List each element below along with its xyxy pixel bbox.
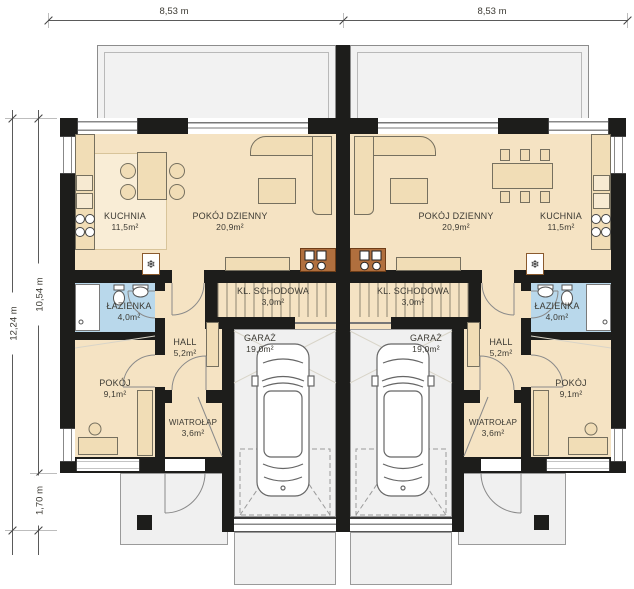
sideboard bbox=[225, 257, 290, 271]
label-garaz: GARAŻ 19,0m² bbox=[396, 333, 456, 354]
dim-height-porch: 1,70 m bbox=[35, 476, 46, 526]
label-lazienka: ŁAZIENKA 4,0m² bbox=[528, 301, 586, 322]
coffee-table bbox=[258, 178, 296, 204]
dining-chair bbox=[500, 149, 510, 161]
desk bbox=[78, 437, 118, 455]
driveway bbox=[234, 532, 336, 585]
dim-height-inner: 10,54 m bbox=[35, 264, 46, 326]
room-garaz-floor bbox=[234, 329, 336, 517]
window-side-pokoj bbox=[60, 428, 75, 462]
stair-railing bbox=[350, 322, 391, 324]
sofa-arm bbox=[312, 136, 332, 215]
porch-column bbox=[137, 515, 152, 530]
terrace bbox=[97, 45, 336, 119]
wall-bath-bottom bbox=[521, 332, 626, 340]
window-top-kitchen bbox=[548, 118, 609, 134]
kitchen-appliance bbox=[76, 175, 93, 191]
door-opening-hall bbox=[482, 270, 514, 283]
wall-bath-bottom bbox=[60, 332, 165, 340]
kitchen-counter bbox=[75, 134, 95, 250]
entry-door-opening bbox=[481, 459, 521, 471]
window-top-kitchen bbox=[77, 118, 138, 134]
window-side-kitchen bbox=[611, 136, 626, 174]
entry-porch bbox=[120, 473, 228, 545]
terrace-sliding-door bbox=[188, 118, 308, 134]
terrace-outline bbox=[104, 52, 329, 118]
dim-width-left: 8,53 m bbox=[130, 6, 218, 17]
shower bbox=[586, 284, 611, 331]
hall-cabinet bbox=[206, 322, 219, 367]
coffee-table bbox=[390, 178, 428, 204]
dining-table bbox=[492, 163, 553, 189]
door-opening-wiatrolap bbox=[172, 390, 206, 403]
dim-width-right: 8,53 m bbox=[448, 6, 536, 17]
window-bottom-pokoj bbox=[76, 459, 140, 471]
label-pokoj-dzienny: POKÓJ DZIENNY 20,9m² bbox=[180, 211, 280, 232]
window-side-kitchen bbox=[60, 136, 75, 174]
hvac-unit: ❄ bbox=[526, 253, 544, 275]
hvac-unit: ❄ bbox=[142, 253, 160, 275]
window-bottom-pokoj bbox=[546, 459, 610, 471]
shower bbox=[75, 284, 100, 331]
garage-door bbox=[234, 517, 336, 532]
dim-guide bbox=[30, 473, 57, 474]
room-garaz-floor bbox=[350, 329, 452, 517]
door-opening-hall bbox=[172, 270, 204, 283]
desk bbox=[568, 437, 608, 455]
party-wall bbox=[336, 45, 343, 532]
dining-chair bbox=[540, 149, 550, 161]
label-wiatrolap: WIATROŁAP 3,6m² bbox=[162, 418, 224, 438]
stove-counter bbox=[350, 248, 386, 272]
label-pokoj: POKÓJ 9,1m² bbox=[85, 378, 145, 399]
entry-door-opening bbox=[165, 459, 205, 471]
terrace-outline bbox=[357, 52, 582, 118]
unit-right: ❄ bbox=[343, 45, 626, 589]
label-garaz: GARAŻ 19,0m² bbox=[230, 333, 290, 354]
dimension-line-top bbox=[48, 20, 628, 21]
dining-chair bbox=[500, 191, 510, 203]
window-side-pokoj bbox=[611, 428, 626, 462]
kitchen-appliance bbox=[593, 175, 610, 191]
terrace-sliding-door bbox=[378, 118, 498, 134]
sofa-arm bbox=[354, 136, 374, 215]
sideboard bbox=[396, 257, 461, 271]
kitchen-table bbox=[137, 152, 167, 200]
label-hall: HALL 5,2m² bbox=[479, 337, 523, 358]
porch-column bbox=[534, 515, 549, 530]
wall bbox=[136, 118, 188, 134]
terrace bbox=[350, 45, 589, 119]
entry-porch bbox=[458, 473, 566, 545]
door-opening-pokoj bbox=[155, 355, 165, 387]
unit-left: ❄ bbox=[60, 45, 343, 589]
wardrobe bbox=[137, 390, 153, 456]
door-opening-wiatrolap bbox=[480, 390, 514, 403]
dining-chair bbox=[520, 191, 530, 203]
wall bbox=[498, 118, 550, 134]
floor-plan-canvas: 8,53 m 8,53 m 12,24 m 10,54 m 1,70 m bbox=[0, 0, 634, 589]
label-lazienka: ŁAZIENKA 4,0m² bbox=[100, 301, 158, 322]
stove-counter bbox=[300, 248, 336, 272]
garage-door bbox=[350, 517, 452, 532]
dim-height-outer: 12,24 m bbox=[9, 293, 20, 355]
label-wiatrolap: WIATROŁAP 3,6m² bbox=[462, 418, 524, 438]
kitchen-appliance bbox=[593, 193, 610, 209]
label-pokoj: POKÓJ 9,1m² bbox=[541, 378, 601, 399]
kitchen-counter bbox=[591, 134, 611, 250]
label-kl-schodowa: KL. SCHODOWA 3,0m² bbox=[350, 286, 476, 307]
stair-railing bbox=[295, 322, 336, 324]
dining-chair bbox=[540, 191, 550, 203]
kitchen-appliance bbox=[76, 193, 93, 209]
driveway bbox=[350, 532, 452, 585]
snowflake-icon: ❄ bbox=[146, 258, 155, 271]
label-kuchnia: KUCHNIA 11,5m² bbox=[521, 211, 601, 232]
label-hall: HALL 5,2m² bbox=[163, 337, 207, 358]
dining-chair bbox=[520, 149, 530, 161]
label-kuchnia: KUCHNIA 11,5m² bbox=[85, 211, 165, 232]
label-pokoj-dzienny: POKÓJ DZIENNY 20,9m² bbox=[406, 211, 506, 232]
label-kl-schodowa: KL. SCHODOWA 3,0m² bbox=[210, 286, 336, 307]
snowflake-icon: ❄ bbox=[530, 258, 539, 271]
door-opening-pokoj bbox=[521, 355, 531, 387]
party-wall bbox=[343, 45, 350, 532]
wardrobe bbox=[533, 390, 549, 456]
